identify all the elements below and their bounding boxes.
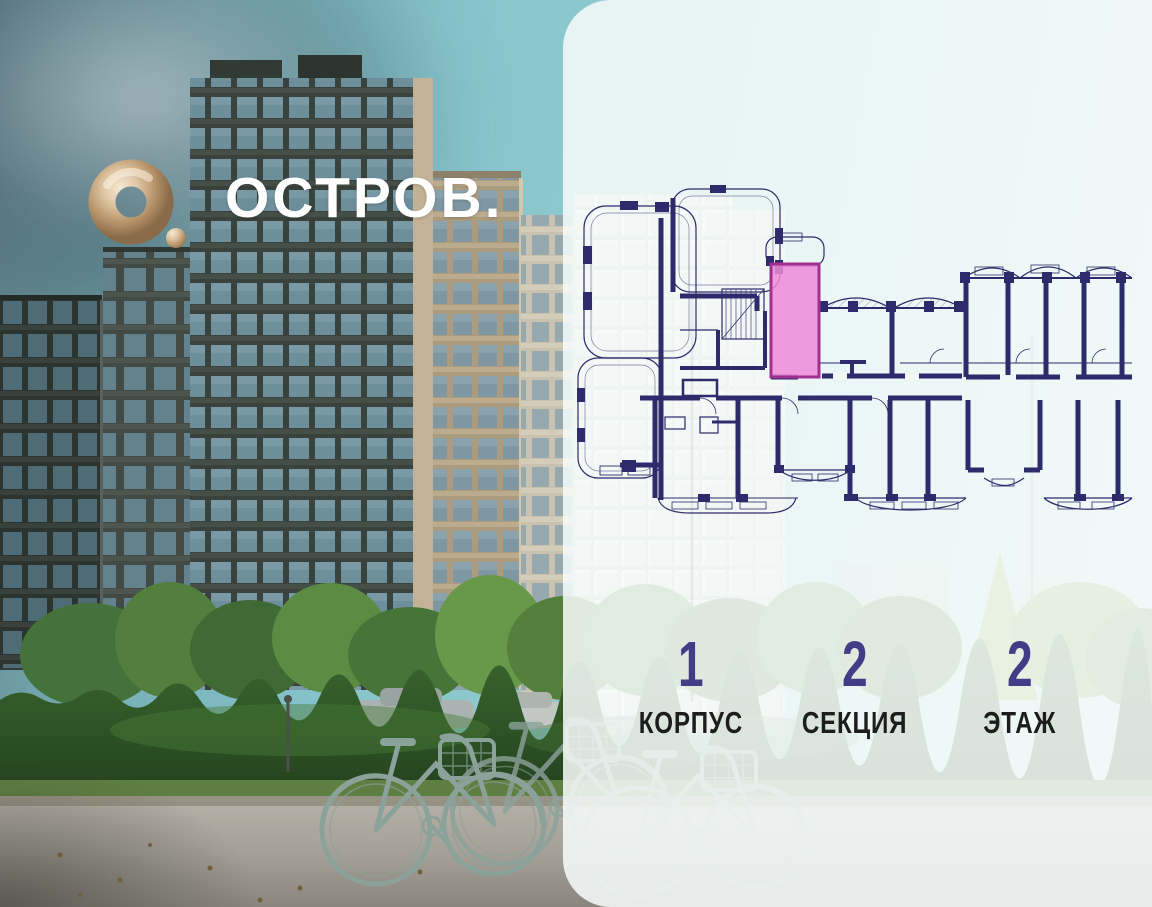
- brand-wordmark: ОСТРОВ.: [225, 170, 504, 227]
- stat-korpus: 1 КОРПУС: [606, 632, 776, 741]
- brand-logo: ОСТРОВ.: [85, 152, 504, 260]
- gold-ring-with-dot-icon: [85, 152, 195, 260]
- apartment-stats: 1 КОРПУС 2 СЕКЦИЯ 2 ЭТАЖ: [563, 632, 1152, 762]
- stat-sektsiya-value: 2: [842, 632, 868, 696]
- page: ОСТРОВ.: [0, 0, 1152, 907]
- stat-korpus-value: 1: [678, 632, 704, 696]
- stat-etazh-label: ЭТАЖ: [984, 705, 1057, 741]
- stat-korpus-label: КОРПУС: [639, 705, 743, 741]
- apartment-info-panel: [563, 0, 1152, 907]
- highlighted-apartment[interactable]: [771, 264, 819, 377]
- stat-sektsiya: 2 СЕКЦИЯ: [770, 632, 940, 741]
- stat-etazh-value: 2: [1007, 632, 1033, 696]
- stat-etazh: 2 ЭТАЖ: [935, 632, 1105, 741]
- stat-sektsiya-label: СЕКЦИЯ: [802, 705, 907, 741]
